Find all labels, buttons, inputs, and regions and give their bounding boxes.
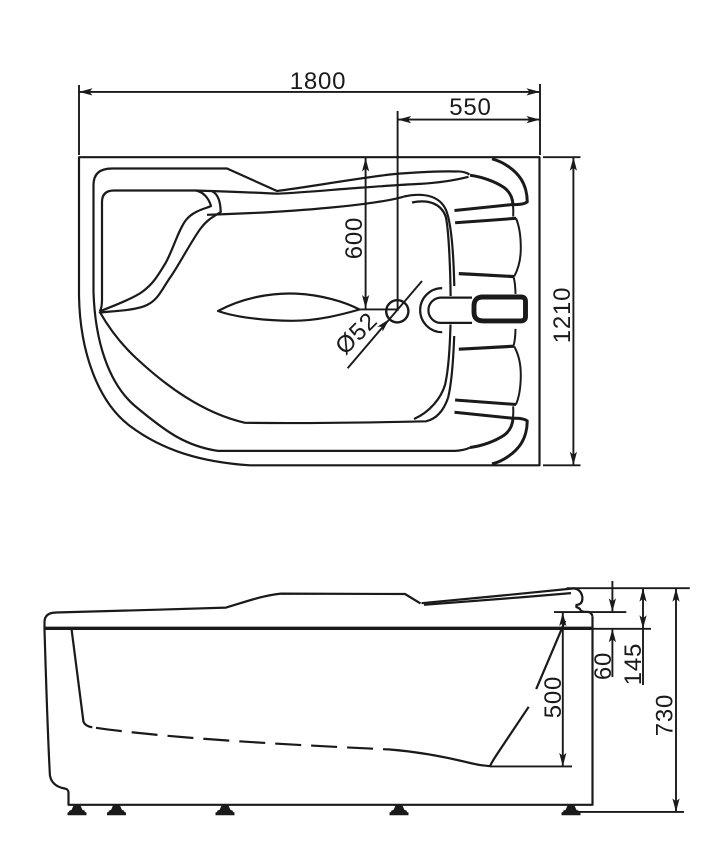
svg-text:1210: 1210	[549, 287, 576, 344]
svg-text:550: 550	[449, 94, 491, 121]
svg-text:145: 145	[620, 643, 647, 685]
svg-text:500: 500	[540, 676, 567, 718]
svg-text:60: 60	[590, 652, 617, 680]
svg-text:1800: 1800	[290, 68, 347, 95]
svg-text:600: 600	[341, 217, 368, 259]
svg-text:730: 730	[652, 694, 679, 736]
